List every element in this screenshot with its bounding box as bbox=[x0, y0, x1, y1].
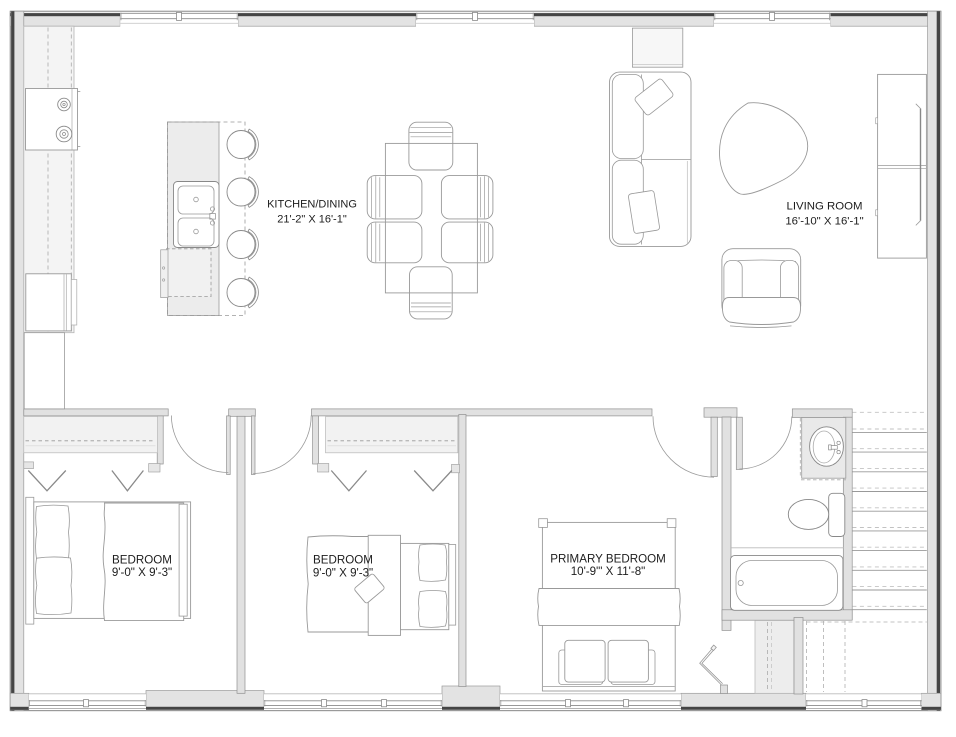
svg-text:16'-10" X 16'-1": 16'-10" X 16'-1" bbox=[785, 216, 863, 228]
svg-text:KITCHEN/DINING: KITCHEN/DINING bbox=[267, 199, 357, 211]
svg-text:9'-0" X 9'-3": 9'-0" X 9'-3" bbox=[313, 567, 373, 580]
svg-text:21'-2" X 16'-1": 21'-2" X 16'-1" bbox=[277, 214, 347, 226]
svg-text:10'-9"' X 11'-8": 10'-9"' X 11'-8" bbox=[571, 565, 646, 578]
svg-text:BEDROOM: BEDROOM bbox=[112, 554, 172, 567]
svg-text:LIVING ROOM: LIVING ROOM bbox=[787, 201, 863, 213]
svg-text:PRIMARY BEDROOM: PRIMARY BEDROOM bbox=[550, 553, 666, 566]
svg-text:9'-0" X 9'-3": 9'-0" X 9'-3" bbox=[112, 566, 172, 579]
svg-text:BEDROOM: BEDROOM bbox=[313, 554, 373, 567]
